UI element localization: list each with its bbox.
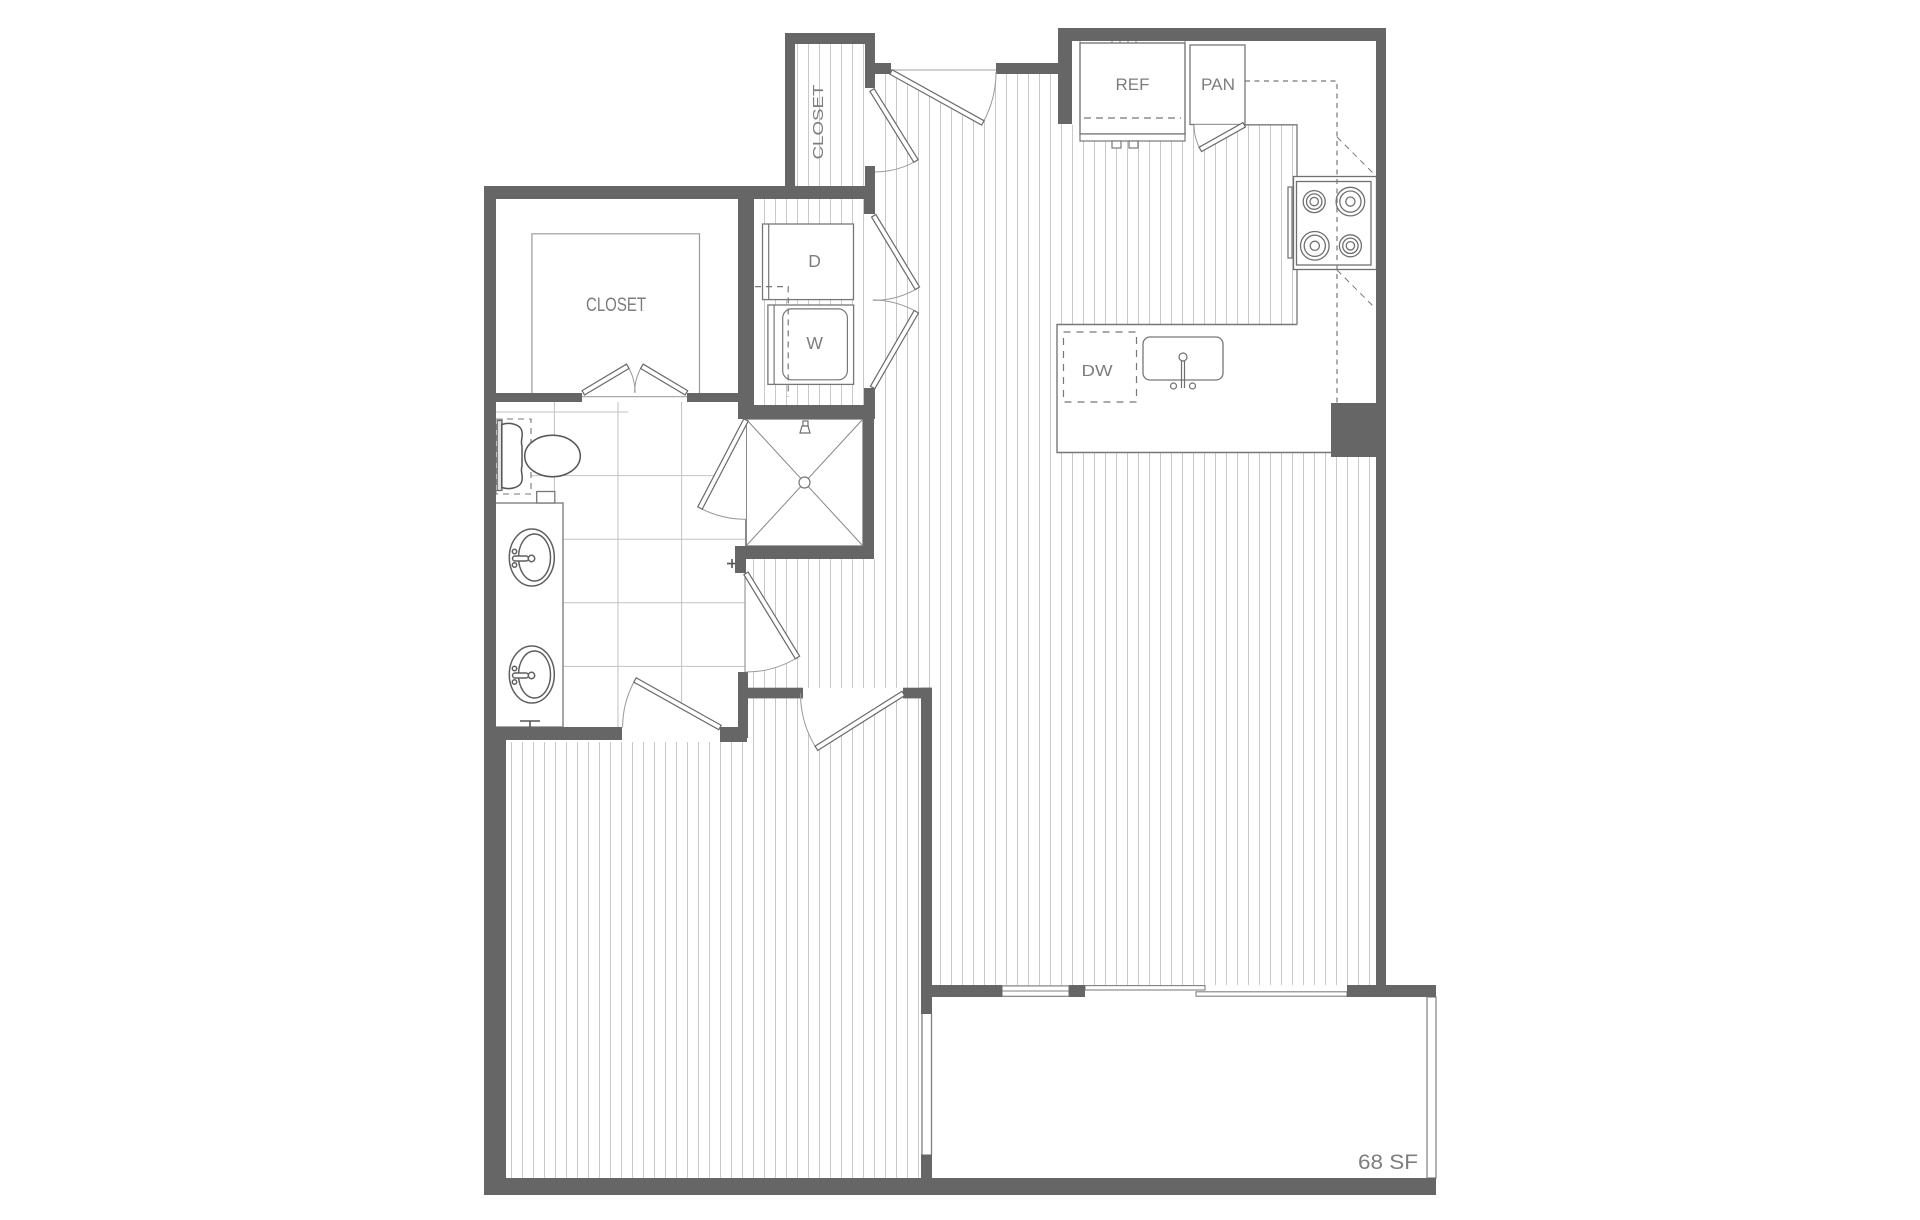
svg-text:PAN: PAN	[1201, 75, 1235, 94]
svg-text:REF: REF	[1116, 75, 1150, 94]
svg-text:DW: DW	[1082, 363, 1114, 380]
svg-text:W: W	[806, 333, 823, 353]
svg-text:68 SF: 68 SF	[1358, 1151, 1418, 1174]
svg-text:CLOSET: CLOSET	[586, 295, 646, 316]
svg-text:CLOSET: CLOSET	[810, 85, 827, 160]
svg-text:D: D	[808, 251, 821, 271]
